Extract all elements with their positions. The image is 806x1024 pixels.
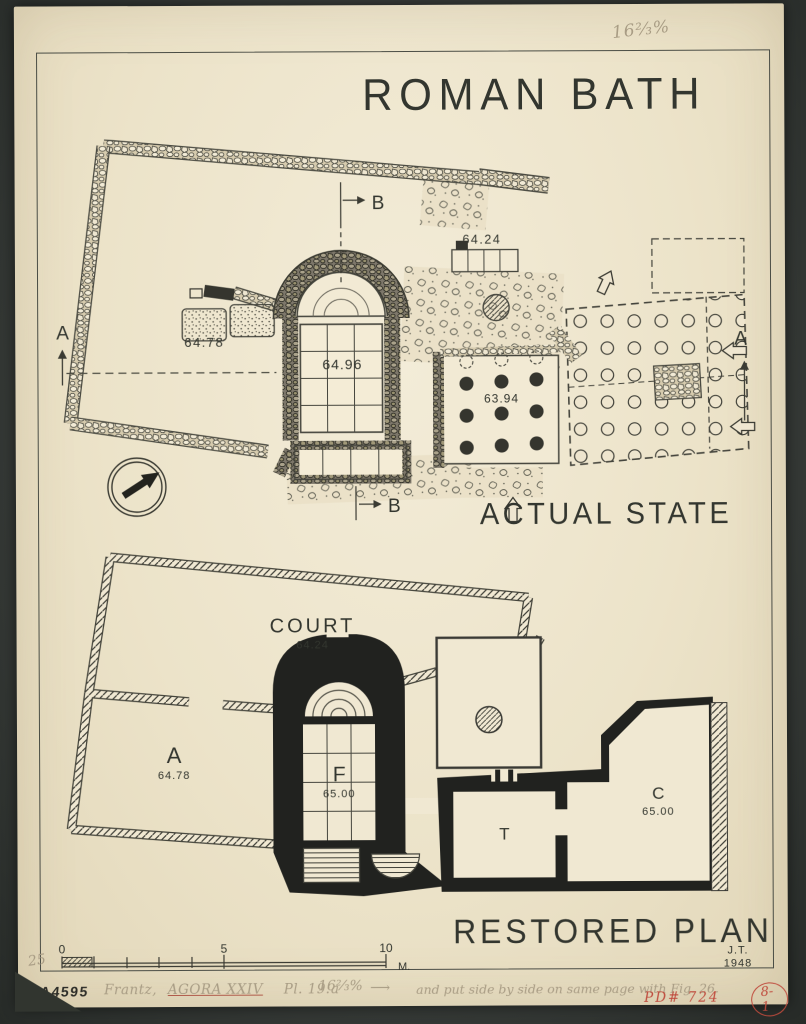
reference-work: AGORA XXIV [168,982,263,998]
room-label-a: A [167,743,182,768]
scale-tick-0: 0 [59,943,66,957]
room-label-t: T [499,825,509,844]
room-label-court: COURT [270,615,356,637]
drawing-title: ROMAN BATH [344,68,724,121]
scale-bar: 0 5 10 M. [56,943,416,979]
photo-mount: { "colors": { "mount": "#3a3e3b", "paper… [0,0,806,1024]
scale-tick-5: 5 [221,943,228,956]
pencil-scale-note: 16⅔% [611,17,671,43]
reference-scale-note: 16⅔% [318,978,363,994]
actual-state-caption: ACTUAL STATE [456,496,756,532]
draftsman-credit: J.T. 1948 [708,944,768,970]
margin-arrow-mark: ⟶ [370,980,389,996]
service-room [437,637,542,767]
plate-number-stamp: 8-1 [750,981,789,1018]
elevation-label-hall: 64.96 [322,356,362,372]
reference-note: Frantz, AGORA XXIV Pl. 19:a [104,981,339,998]
reference-author: Frantz, [104,982,157,998]
elevation-label-bases: 64.78 [184,335,224,350]
elevation-label-hypocaust: 63.94 [484,391,519,405]
drawing-number: PD# 724 [644,990,719,1006]
room-elevation-court: 64.24 [296,639,329,651]
credit-initials: J.T. [708,944,768,957]
basin-circle [483,295,509,321]
scale-tick-10: 10 [379,943,393,955]
room-elevation-c: 65.00 [642,806,675,818]
section-marker-b-top: B [372,193,385,214]
actual-state-plan: 64.78 64.24 64.96 [53,118,765,531]
room-elevation-f: 65.00 [323,788,356,800]
threshold-blocks: 64.24 [452,232,518,271]
restored-plan: COURT 64.24 A 64.78 F 65.00 T C 65.00 [60,539,742,942]
east-wing-pilae-field [554,238,749,465]
elevation-label-court: 64.24 [462,233,501,247]
room-elevation-a: 64.78 [158,770,191,782]
north-arrow [108,458,166,516]
credit-year: 1948 [708,957,768,970]
room-label-f: F [333,763,346,786]
section-marker-a-left: A [56,323,69,344]
bath-block [273,630,450,897]
section-marker-b-bottom: B [388,496,401,517]
margin-page-number: 25 [27,951,47,969]
paper-sheet: 16⅔% ROMAN BATH [14,3,788,1007]
flow-arrow-north [594,268,619,296]
hypocaust-room: 63.94 [438,348,559,468]
room-label-c: C [652,784,664,803]
scale-unit: M. [398,961,410,973]
